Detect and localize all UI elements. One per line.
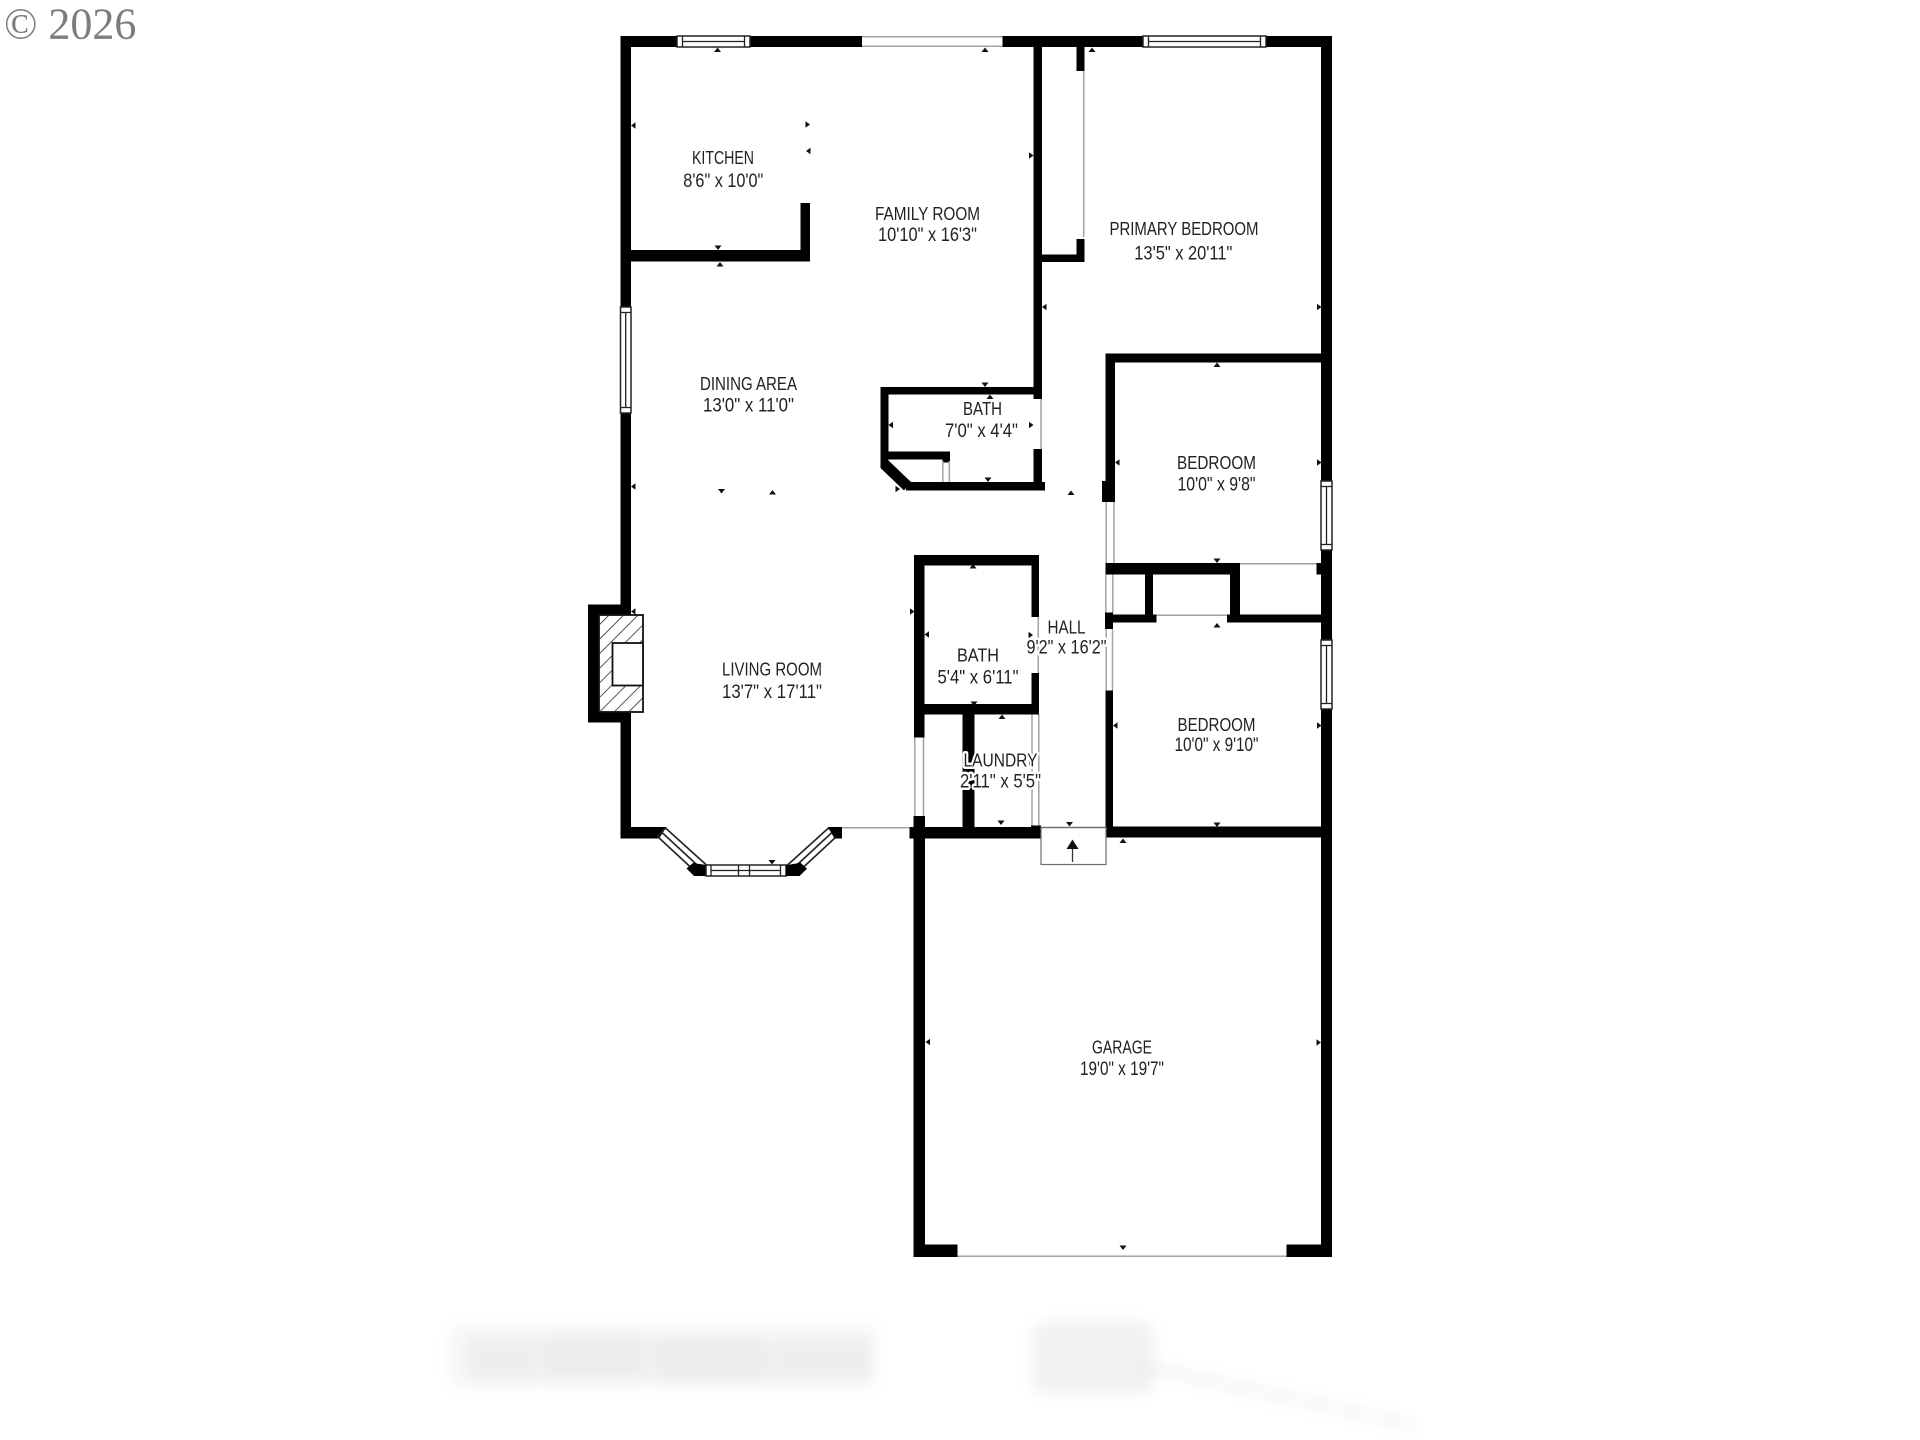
- svg-text:© 2026: © 2026: [4, 0, 136, 49]
- svg-text:BATH: BATH: [957, 645, 999, 666]
- svg-text:DINING AREA: DINING AREA: [700, 373, 798, 394]
- svg-text:13'5" x 20'11": 13'5" x 20'11": [1134, 243, 1232, 264]
- svg-text:2'11" x 5'5": 2'11" x 5'5": [960, 772, 1041, 793]
- svg-text:13'0" x 11'0": 13'0" x 11'0": [703, 396, 794, 417]
- svg-text:KITCHEN: KITCHEN: [692, 147, 754, 168]
- svg-text:10'0" x 9'10": 10'0" x 9'10": [1175, 735, 1259, 756]
- svg-text:BEDROOM: BEDROOM: [1177, 452, 1256, 473]
- svg-text:FAMILY ROOM: FAMILY ROOM: [875, 203, 980, 224]
- svg-text:GARAGE: GARAGE: [1092, 1036, 1152, 1057]
- svg-text:8'6" x 10'0": 8'6" x 10'0": [683, 171, 763, 192]
- svg-text:7'0" x 4'4": 7'0" x 4'4": [945, 421, 1018, 442]
- svg-text:9'2" x 16'2": 9'2" x 16'2": [1027, 637, 1107, 658]
- svg-text:BEDROOM: BEDROOM: [1178, 714, 1256, 735]
- svg-text:10'0" x 9'8": 10'0" x 9'8": [1178, 474, 1256, 495]
- svg-text:HALL: HALL: [1048, 616, 1086, 637]
- svg-text:13'7" x 17'11": 13'7" x 17'11": [722, 682, 822, 703]
- svg-text:PRIMARY BEDROOM: PRIMARY BEDROOM: [1110, 218, 1259, 239]
- svg-text:BATH: BATH: [963, 398, 1002, 419]
- svg-text:LAUNDRY: LAUNDRY: [964, 750, 1038, 771]
- svg-text:10'10" x 16'3": 10'10" x 16'3": [878, 225, 977, 246]
- svg-text:19'0" x 19'7": 19'0" x 19'7": [1080, 1059, 1164, 1080]
- svg-text:5'4" x 6'11": 5'4" x 6'11": [938, 667, 1019, 688]
- svg-text:LIVING ROOM: LIVING ROOM: [722, 659, 822, 680]
